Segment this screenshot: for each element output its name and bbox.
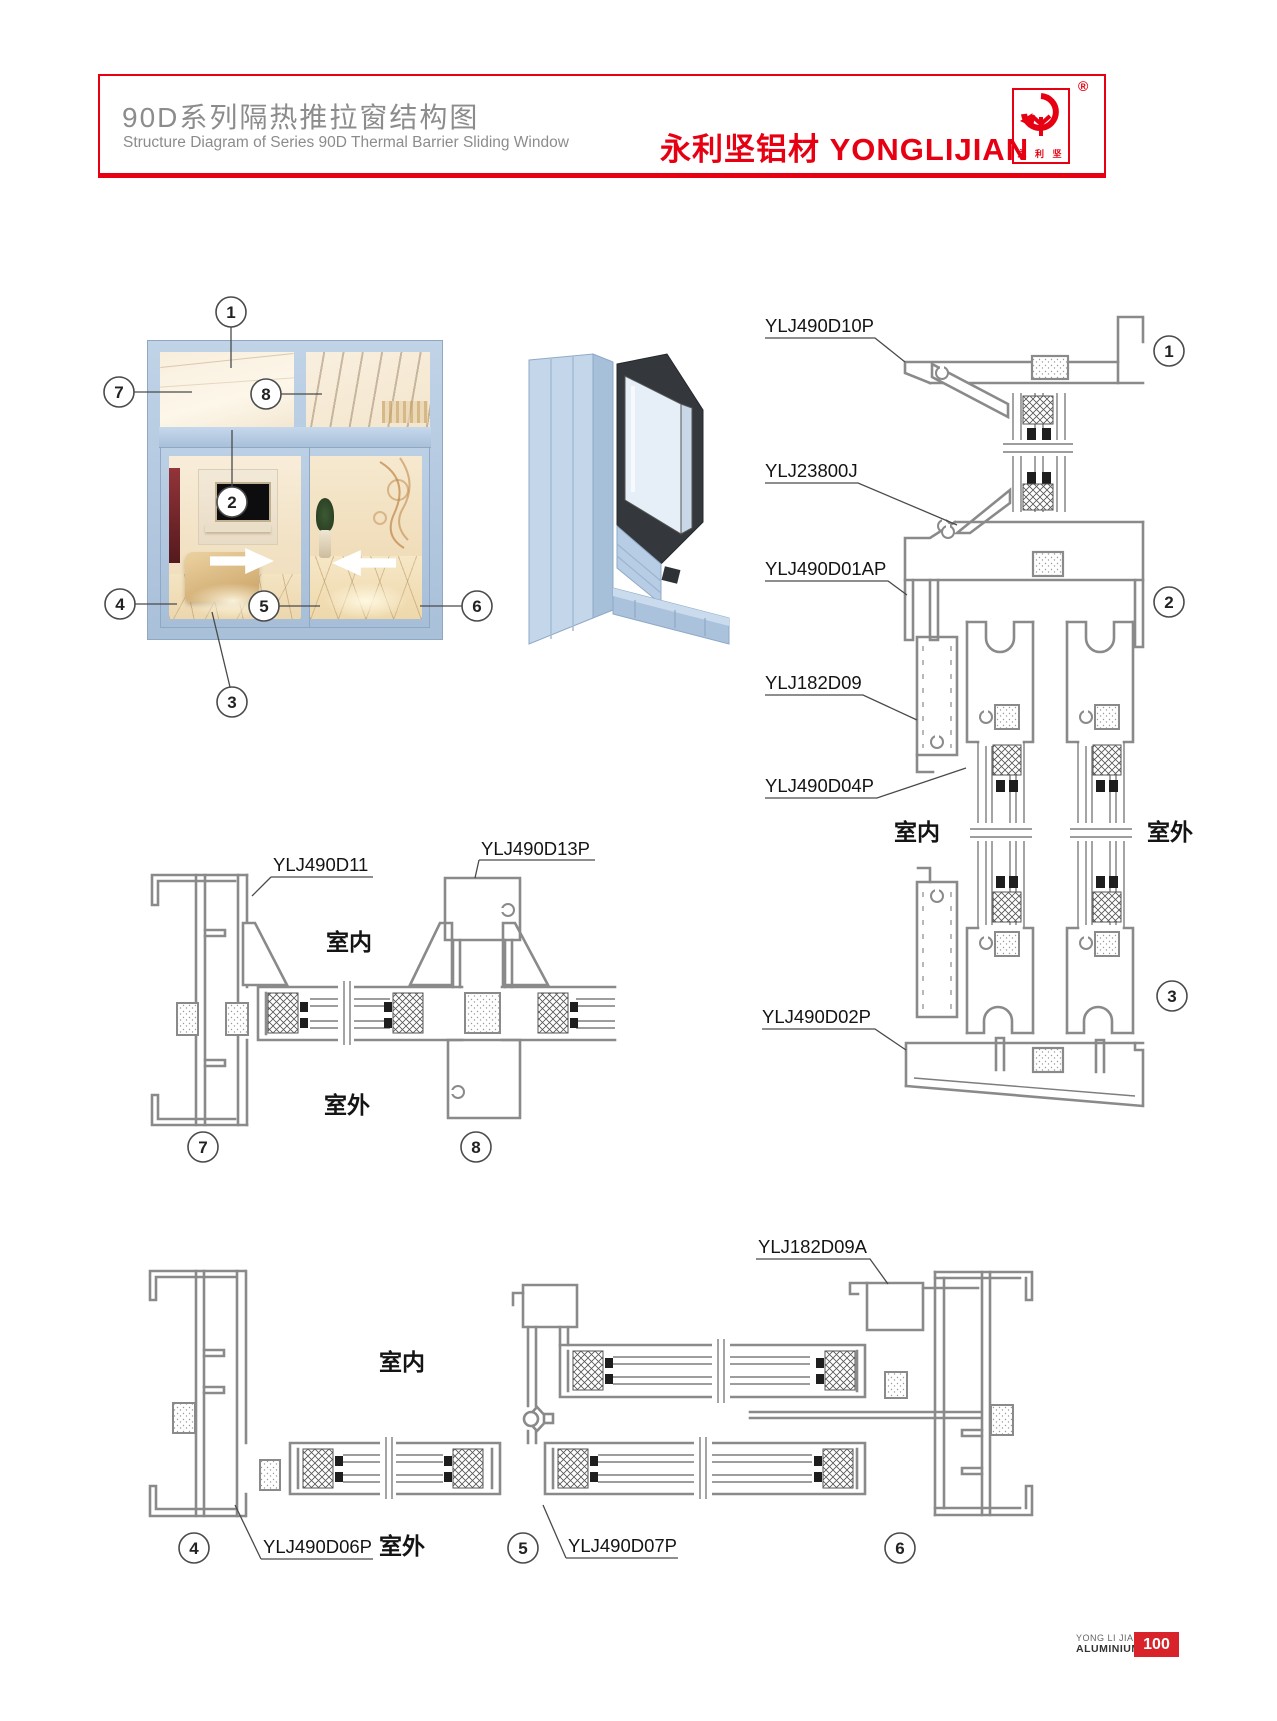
- callout-leader-lines: [134, 327, 462, 687]
- footer-brand: YONG LI JIAN ALUMINIUM: [1076, 1633, 1134, 1655]
- part-label: YLJ490D02P: [762, 1006, 871, 1027]
- sill-profile: [906, 1038, 1143, 1106]
- section-callout-5: 5: [508, 1533, 538, 1563]
- outdoor-label: 室外: [379, 1533, 425, 1559]
- sash-section-right: [1067, 622, 1133, 1033]
- callout-2-number: 2: [227, 493, 236, 512]
- callout-3: 3: [217, 687, 247, 717]
- brand-logo-icon: [1014, 90, 1068, 142]
- callout-5-number: 5: [259, 597, 268, 616]
- jamb-profile-left: [152, 875, 248, 1125]
- footer-brand-line1: YONG LI JIAN: [1076, 1633, 1134, 1643]
- indoor-label: 室内: [379, 1349, 425, 1375]
- track-cover-upper-profile: [917, 637, 957, 772]
- part-label: YLJ490D04P: [765, 775, 874, 796]
- section-callout-8-number: 8: [471, 1138, 480, 1157]
- glazing-beads: [243, 923, 548, 985]
- outer-glazing-band-left: [290, 1437, 500, 1499]
- part-label: YLJ490D01AP: [765, 558, 886, 579]
- part-label: YLJ490D13P: [481, 838, 590, 859]
- inner-glazing-band: [560, 1339, 865, 1403]
- indoor-label: 室内: [894, 819, 940, 845]
- brand-name: 永利坚铝材 YONGLIJIAN: [660, 124, 1029, 169]
- glazing-band: [258, 981, 615, 1045]
- callout-1-number: 1: [226, 303, 235, 322]
- fixed-glass-unit: [1003, 393, 1073, 512]
- section-callout-2-number: 2: [1164, 593, 1173, 612]
- callout-8-number: 8: [261, 385, 270, 404]
- plan-section-top-drawing: YLJ490D11 YLJ490D13P 室内 室外 7 8: [140, 830, 620, 1170]
- section-callout-1-number: 1: [1164, 342, 1173, 361]
- callout-3-number: 3: [227, 693, 236, 712]
- section-callout-4: 4: [179, 1533, 209, 1563]
- section-callout-7: 7: [188, 1132, 218, 1162]
- footer-brand-line2: ALUMINIUM: [1076, 1643, 1134, 1655]
- header: 90D系列隔热推拉窗结构图 Structure Diagram of Serie…: [98, 74, 1106, 178]
- registered-mark: ®: [1078, 78, 1088, 94]
- indoor-label: 室内: [326, 929, 372, 955]
- outdoor-label: 室外: [1147, 819, 1193, 845]
- part-label: YLJ490D07P: [568, 1535, 677, 1556]
- page-subtitle: Structure Diagram of Series 90D Thermal …: [123, 134, 569, 152]
- outdoor-label: 室外: [324, 1092, 370, 1118]
- callout-4: 4: [105, 589, 135, 619]
- callout-6: 6: [462, 591, 492, 621]
- photo-callouts: 1 7 8 2 4 5 6 3: [90, 280, 510, 730]
- jamb-profile-right: [935, 1272, 1032, 1515]
- jamb-profile-left: [150, 1271, 280, 1516]
- part-label: YLJ490D11: [273, 854, 368, 875]
- outer-glazing-band-right: [545, 1437, 865, 1499]
- section-callout-2: 2: [1154, 587, 1184, 617]
- callout-1: 1: [216, 297, 246, 327]
- section-callout-1: 1: [1154, 336, 1184, 366]
- page-title: 90D系列隔热推拉窗结构图: [122, 96, 479, 136]
- section-callout-8: 8: [461, 1132, 491, 1162]
- sash-section-left: [967, 622, 1033, 1033]
- part-label: YLJ490D10P: [765, 315, 874, 336]
- vertical-section-labels: YLJ490D10P YLJ23800J YLJ490D01AP YLJ182D…: [762, 315, 1193, 1050]
- callout-4-number: 4: [115, 595, 125, 614]
- plan-section-bottom-drawing: YLJ182D09A 室内 YLJ490D06P 室外 YLJ490D07P 4…: [140, 1190, 1050, 1610]
- part-label: YLJ182D09: [765, 672, 862, 693]
- vertical-section-drawing: YLJ490D10P YLJ23800J YLJ490D01AP YLJ182D…: [690, 280, 1190, 1070]
- logo-characters: 永 利 坚: [1014, 147, 1068, 160]
- callout-5: 5: [249, 591, 279, 621]
- page-number-badge: 100: [1134, 1632, 1179, 1657]
- callout-7: 7: [104, 377, 134, 407]
- section-callout-7-number: 7: [198, 1138, 207, 1157]
- callout-2: 2: [217, 487, 247, 517]
- track-cover-lower-profile: [917, 868, 957, 1017]
- callout-6-number: 6: [472, 597, 481, 616]
- section-callout-3-number: 3: [1167, 987, 1176, 1006]
- section-callout-6-number: 6: [895, 1539, 904, 1558]
- interlock-profile: [445, 878, 520, 1118]
- callout-7-number: 7: [114, 383, 123, 402]
- callout-8: 8: [251, 379, 281, 409]
- section-callout-6: 6: [885, 1533, 915, 1563]
- section-callout-5-number: 5: [518, 1539, 527, 1558]
- transom-frame-profile: [905, 522, 1143, 647]
- brand-logo: 永 利 坚: [1012, 88, 1070, 164]
- part-label: YLJ490D06P: [263, 1536, 372, 1557]
- section-callout-3: 3: [1157, 981, 1187, 1011]
- section-callout-4-number: 4: [189, 1539, 199, 1558]
- part-label: YLJ182D09A: [758, 1236, 868, 1257]
- part-label: YLJ23800J: [765, 460, 858, 481]
